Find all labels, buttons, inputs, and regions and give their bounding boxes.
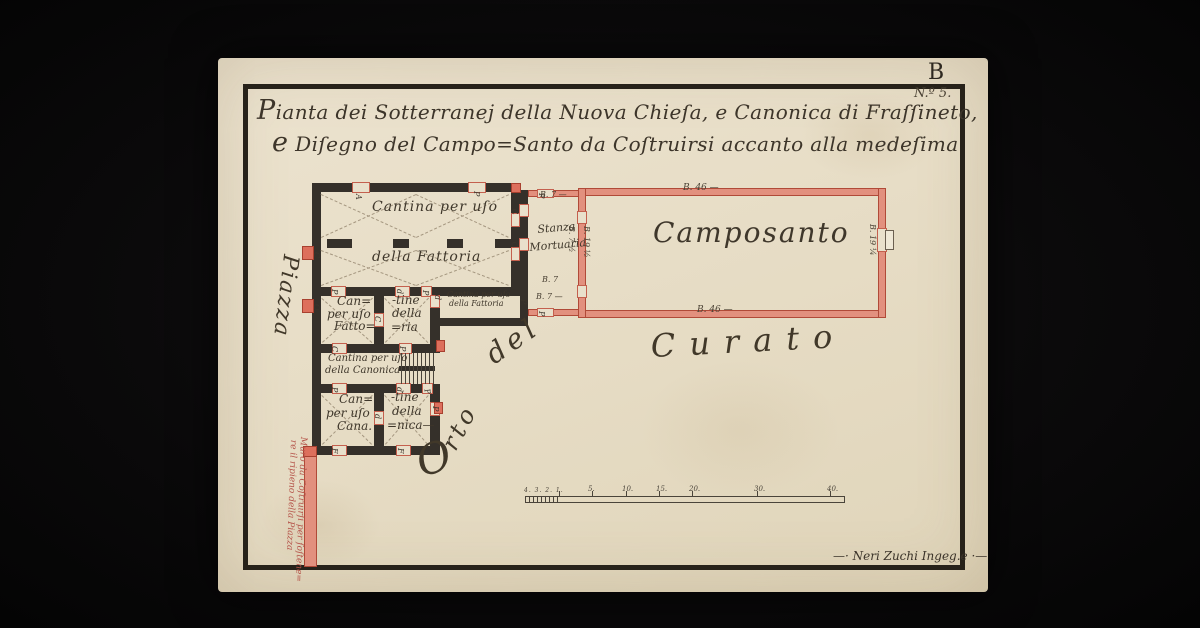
camposanto-gate	[885, 230, 894, 250]
scanned-plan-page: B N.º 5. Pianta dei Sotterranej della Nu…	[0, 0, 1200, 628]
title-line-2: e Diſegno del Campo=Santo da Coſtruirsi …	[272, 127, 959, 158]
scale-bar	[525, 496, 845, 503]
corner-letter: B	[928, 60, 944, 85]
title-line-1: Pianta dei Sotterranej della Nuova Chieſ…	[257, 95, 978, 126]
surveyor-signature: —· Neri Zuchi Ingeg.e ·—	[833, 549, 987, 563]
scale-micro-labels: 4. 3. 2. 1.	[524, 488, 564, 494]
